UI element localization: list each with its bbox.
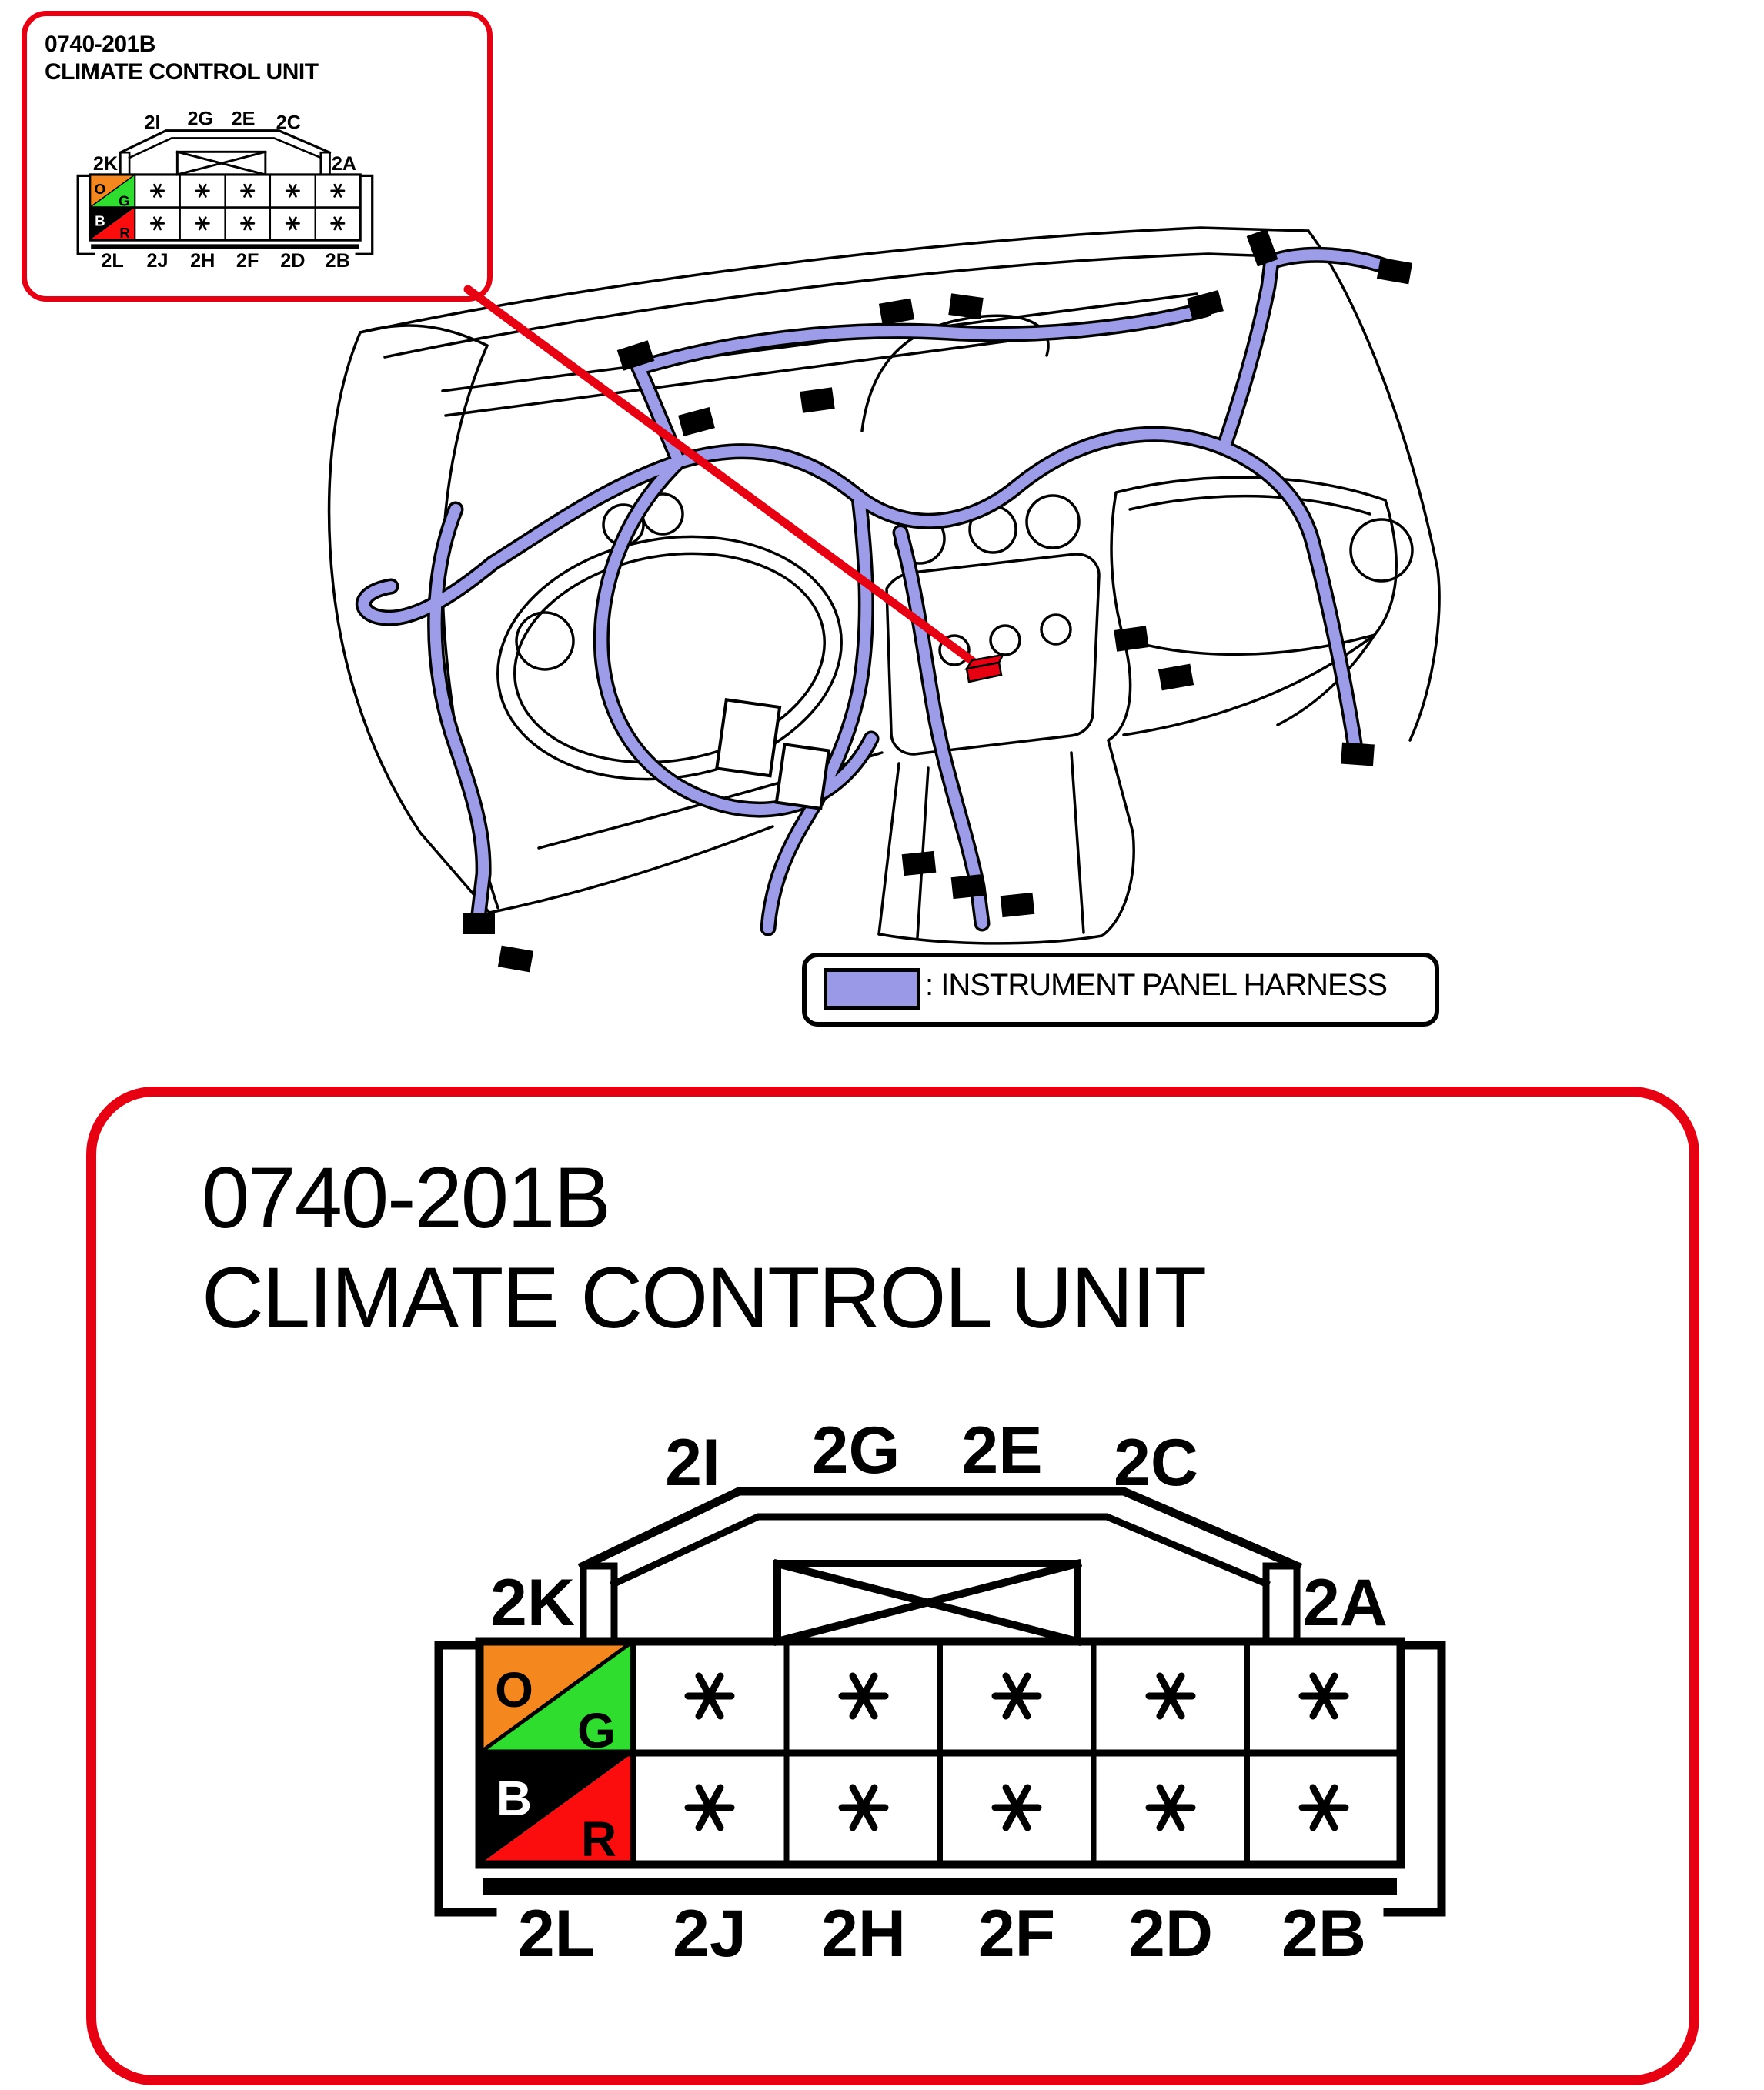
detail-connector-code: 0740-201B <box>202 1148 1205 1248</box>
wiring-diagram-page: O G B R 2I 2G 2E 2C 2K 2A 2L 2J 2H 2F 2D… <box>0 0 1764 2090</box>
detail-connector-diagram <box>416 1408 1462 2008</box>
detail-connector-name: CLIMATE CONTROL UNIT <box>202 1248 1205 1348</box>
inset-connector-diagram <box>71 106 379 282</box>
relay-boxes <box>713 699 834 808</box>
inset-connector-code: 0740-201B <box>45 31 319 58</box>
inset-connector-name: CLIMATE CONTROL UNIT <box>45 58 319 86</box>
legend-label: : INSTRUMENT PANEL HARNESS <box>925 953 1387 1017</box>
inset-callout-title: 0740-201B CLIMATE CONTROL UNIT <box>45 31 319 86</box>
harness-color-swatch <box>824 968 920 1010</box>
detail-panel-title: 0740-201B CLIMATE CONTROL UNIT <box>202 1148 1205 1348</box>
